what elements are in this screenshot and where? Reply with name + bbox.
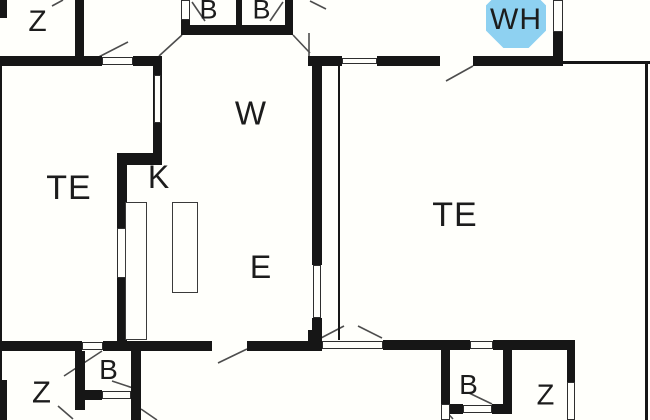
- wall-segment: [473, 56, 563, 66]
- wall-segment: [0, 56, 102, 66]
- room-label-z-top: Z: [28, 7, 47, 37]
- room-label-wh: WH: [490, 5, 542, 35]
- room-label-k-kitchen: K: [148, 161, 170, 193]
- wall-segment: [85, 390, 102, 400]
- wall-segment: [247, 341, 310, 351]
- room-label-z-bottom-right: Z: [537, 382, 556, 411]
- wall-segment: [103, 341, 212, 351]
- wall-segment: [75, 0, 84, 56]
- room-label-b-top-right: B: [252, 0, 271, 24]
- wall-segment: [312, 318, 322, 341]
- wall-segment: [493, 340, 575, 350]
- floorplan-canvas: ZBBWHWTEKETEZBBZ: [0, 0, 650, 420]
- wall-segment: [338, 66, 340, 340]
- room-label-b-bottom-right: B: [459, 371, 479, 399]
- wall-segment: [441, 350, 450, 404]
- window-opening: [313, 265, 321, 318]
- wall-segment: [312, 56, 322, 265]
- wall-segment: [563, 61, 650, 64]
- window-opening: [102, 57, 133, 65]
- wall-segment: [503, 350, 512, 411]
- kitchen-counter: [172, 202, 198, 293]
- window-opening: [154, 75, 161, 123]
- window-opening: [553, 0, 563, 32]
- room-label-e-hall: E: [250, 251, 272, 283]
- wall-segment: [645, 62, 648, 420]
- wall-segment: [383, 340, 470, 350]
- wall-segment: [492, 404, 512, 414]
- wall-segment: [133, 56, 162, 66]
- window-opening: [82, 342, 103, 350]
- wall-segment: [236, 0, 242, 25]
- room-label-z-bottom-left: Z: [32, 377, 52, 408]
- room-label-w-hall: W: [235, 97, 267, 130]
- wall-segment: [0, 341, 82, 351]
- window-opening: [181, 0, 190, 20]
- room-label-b-top-left: B: [199, 0, 218, 24]
- wall-segment: [0, 66, 2, 380]
- window-opening: [342, 58, 377, 64]
- wall-segment: [131, 351, 141, 420]
- window-opening: [567, 382, 575, 420]
- window-opening: [441, 404, 450, 420]
- wall-segment: [553, 32, 563, 66]
- wall-segment: [285, 0, 293, 35]
- wall-segment: [0, 380, 7, 420]
- kitchen-counter: [125, 202, 147, 340]
- room-label-te-right: TE: [432, 198, 477, 232]
- wall-segment: [181, 25, 293, 35]
- wall-segment: [450, 404, 463, 414]
- wall-segment: [377, 56, 440, 66]
- wall-segment: [567, 350, 575, 383]
- window-opening: [322, 341, 383, 349]
- wall-segment: [0, 0, 7, 18]
- wall-segment: [75, 351, 85, 410]
- window-opening: [463, 405, 492, 413]
- window-opening: [102, 391, 131, 399]
- room-label-te-left: TE: [46, 171, 91, 205]
- room-label-b-bottom-left: B: [99, 356, 119, 384]
- window-opening: [470, 341, 493, 349]
